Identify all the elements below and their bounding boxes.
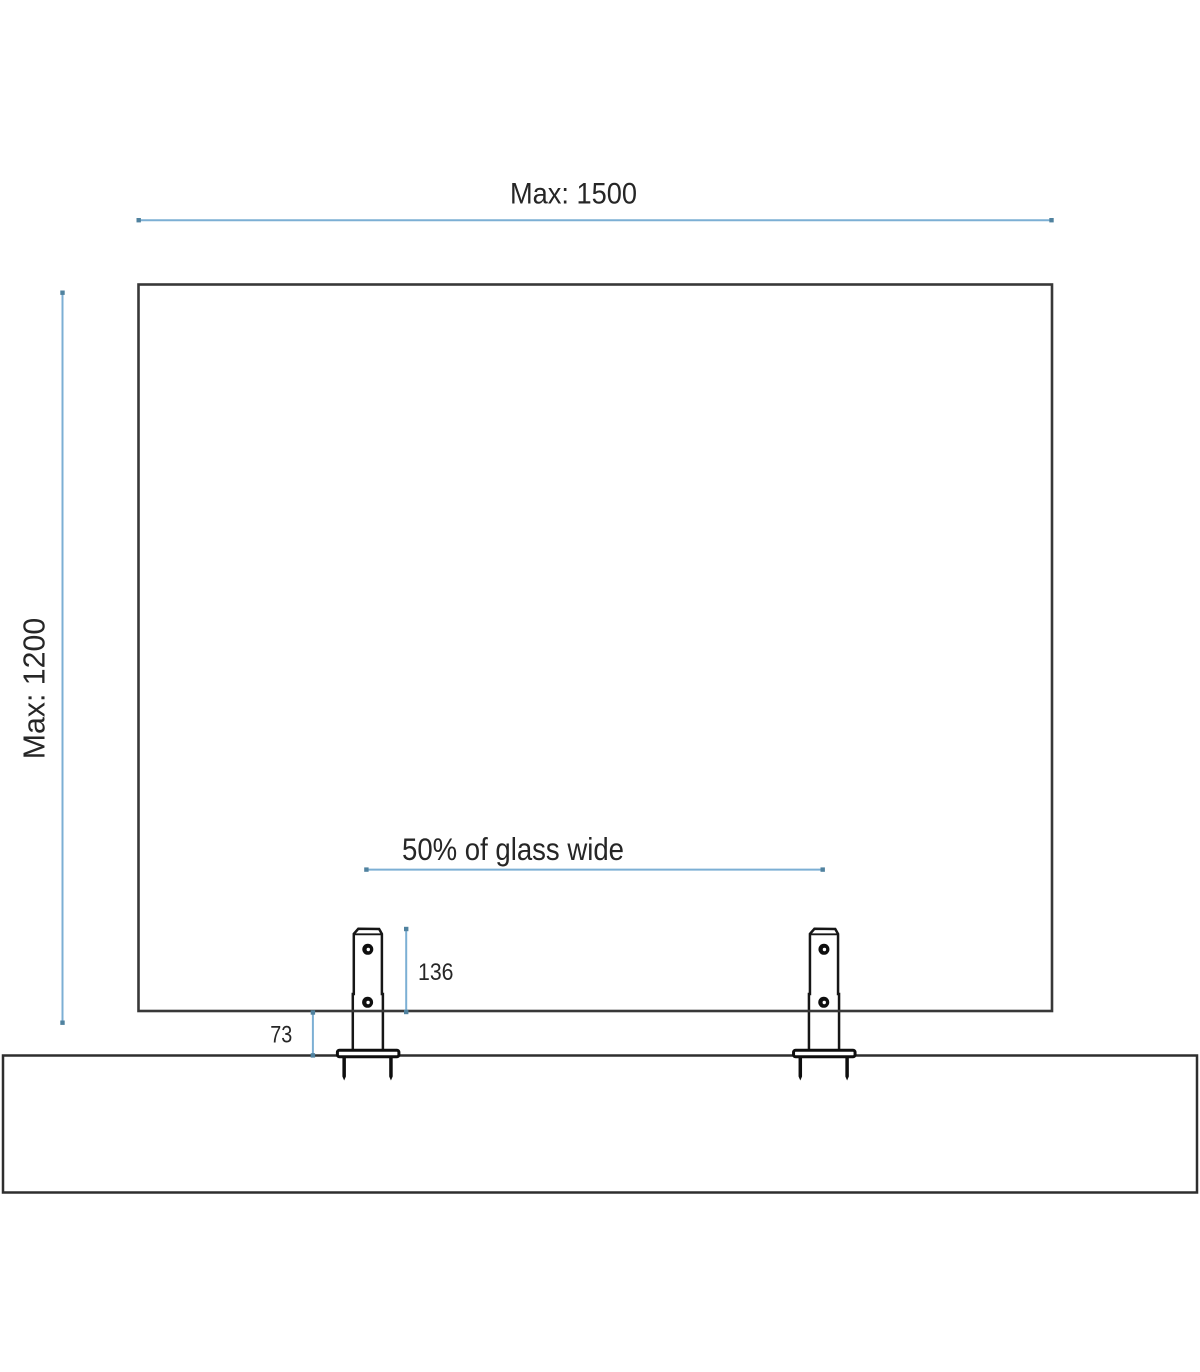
svg-text:136: 136 xyxy=(418,959,454,986)
svg-text:Max: 1200: Max: 1200 xyxy=(17,618,52,760)
svg-text:73: 73 xyxy=(270,1022,292,1049)
svg-text:50% of glass wide: 50% of glass wide xyxy=(402,831,624,867)
svg-text:Max: 1500: Max: 1500 xyxy=(510,178,637,211)
